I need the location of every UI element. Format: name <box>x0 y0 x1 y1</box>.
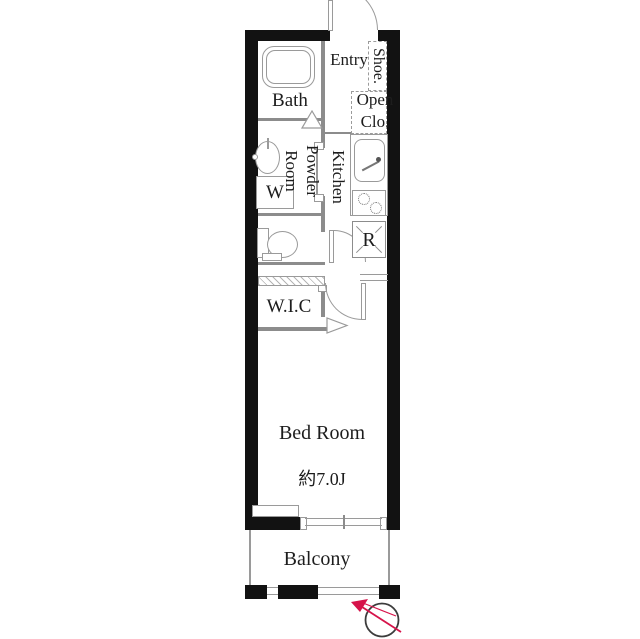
bathtub-icon <box>262 46 315 88</box>
powder-room-label: Powder Room <box>281 132 323 210</box>
washbasin-tap-icon <box>267 138 269 149</box>
compass-icon <box>350 597 406 639</box>
balcony-rail-right <box>388 530 390 587</box>
refrigerator-space-label: R <box>352 229 386 252</box>
wic-opening-arrow-icon <box>326 317 349 334</box>
stove-icon <box>352 190 386 216</box>
stove-burner-icon <box>370 202 382 214</box>
balcony-rail-left <box>249 530 251 587</box>
bedroom-size: 約7.0J <box>262 469 382 491</box>
wall-powder-bottom <box>258 213 325 216</box>
wic-label: W.I.C <box>254 296 324 318</box>
hall-step-line <box>360 274 388 281</box>
kitchen-label: Kitchen <box>328 142 348 212</box>
washbasin-knob-icon <box>252 154 258 160</box>
wall-toilet-right-stub <box>321 215 325 232</box>
bath-label: Bath <box>258 90 322 112</box>
wic-hanger-band <box>258 276 325 286</box>
balcony-rail-bottom <box>250 587 389 595</box>
balcony-block-mid <box>278 585 318 599</box>
bath-folding-door-icon <box>300 110 324 129</box>
bedroom-door-arc <box>325 283 362 320</box>
wall-wic-bottom <box>258 327 328 331</box>
open-closet-label: Open Clo. <box>350 89 400 133</box>
entry-door-arc <box>333 0 378 30</box>
kitchen-faucet-dot-icon <box>376 157 381 162</box>
window-center-tick <box>343 515 345 529</box>
wall-toilet-bottom <box>258 262 325 265</box>
wall-kitchen-top <box>321 132 352 134</box>
bedroom-name: Bed Room <box>262 421 382 445</box>
wall-left <box>245 30 258 530</box>
bedroom-label: Bed Room 約7.0J <box>262 397 382 515</box>
shoe-closet-label: Shoe. <box>369 40 387 92</box>
floor-plan: W R Entry Shoe. Open Clo. Bath <box>0 0 640 639</box>
toilet-panel-icon <box>262 253 282 261</box>
balcony-label: Balcony <box>257 548 377 571</box>
wall-bottom-left <box>245 517 302 530</box>
stove-burner-icon <box>358 193 370 205</box>
balcony-block-left <box>245 585 267 599</box>
